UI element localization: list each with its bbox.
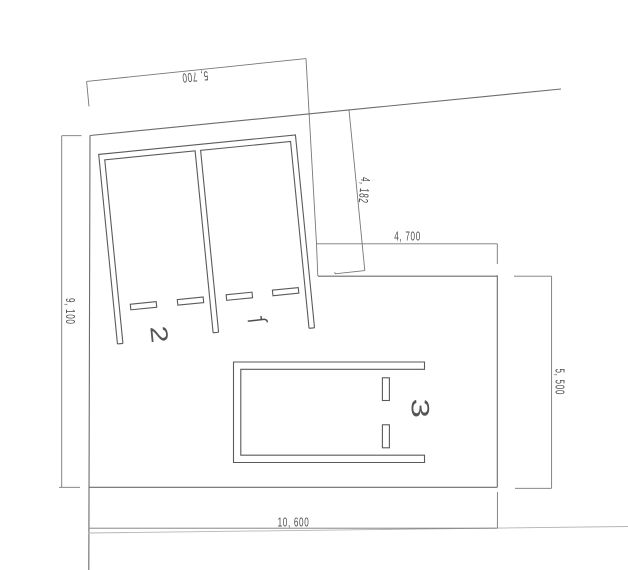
- svg-text:5, 700: 5, 700: [181, 67, 209, 84]
- svg-text:4, 700: 4, 700: [394, 229, 421, 243]
- svg-text:10, 600: 10, 600: [278, 516, 310, 530]
- svg-text:5, 500: 5, 500: [552, 369, 566, 396]
- svg-text:2: 2: [144, 325, 173, 345]
- svg-text:3: 3: [406, 399, 434, 419]
- svg-text:4, 182: 4, 182: [355, 176, 372, 204]
- svg-text:9, 100: 9, 100: [63, 298, 77, 325]
